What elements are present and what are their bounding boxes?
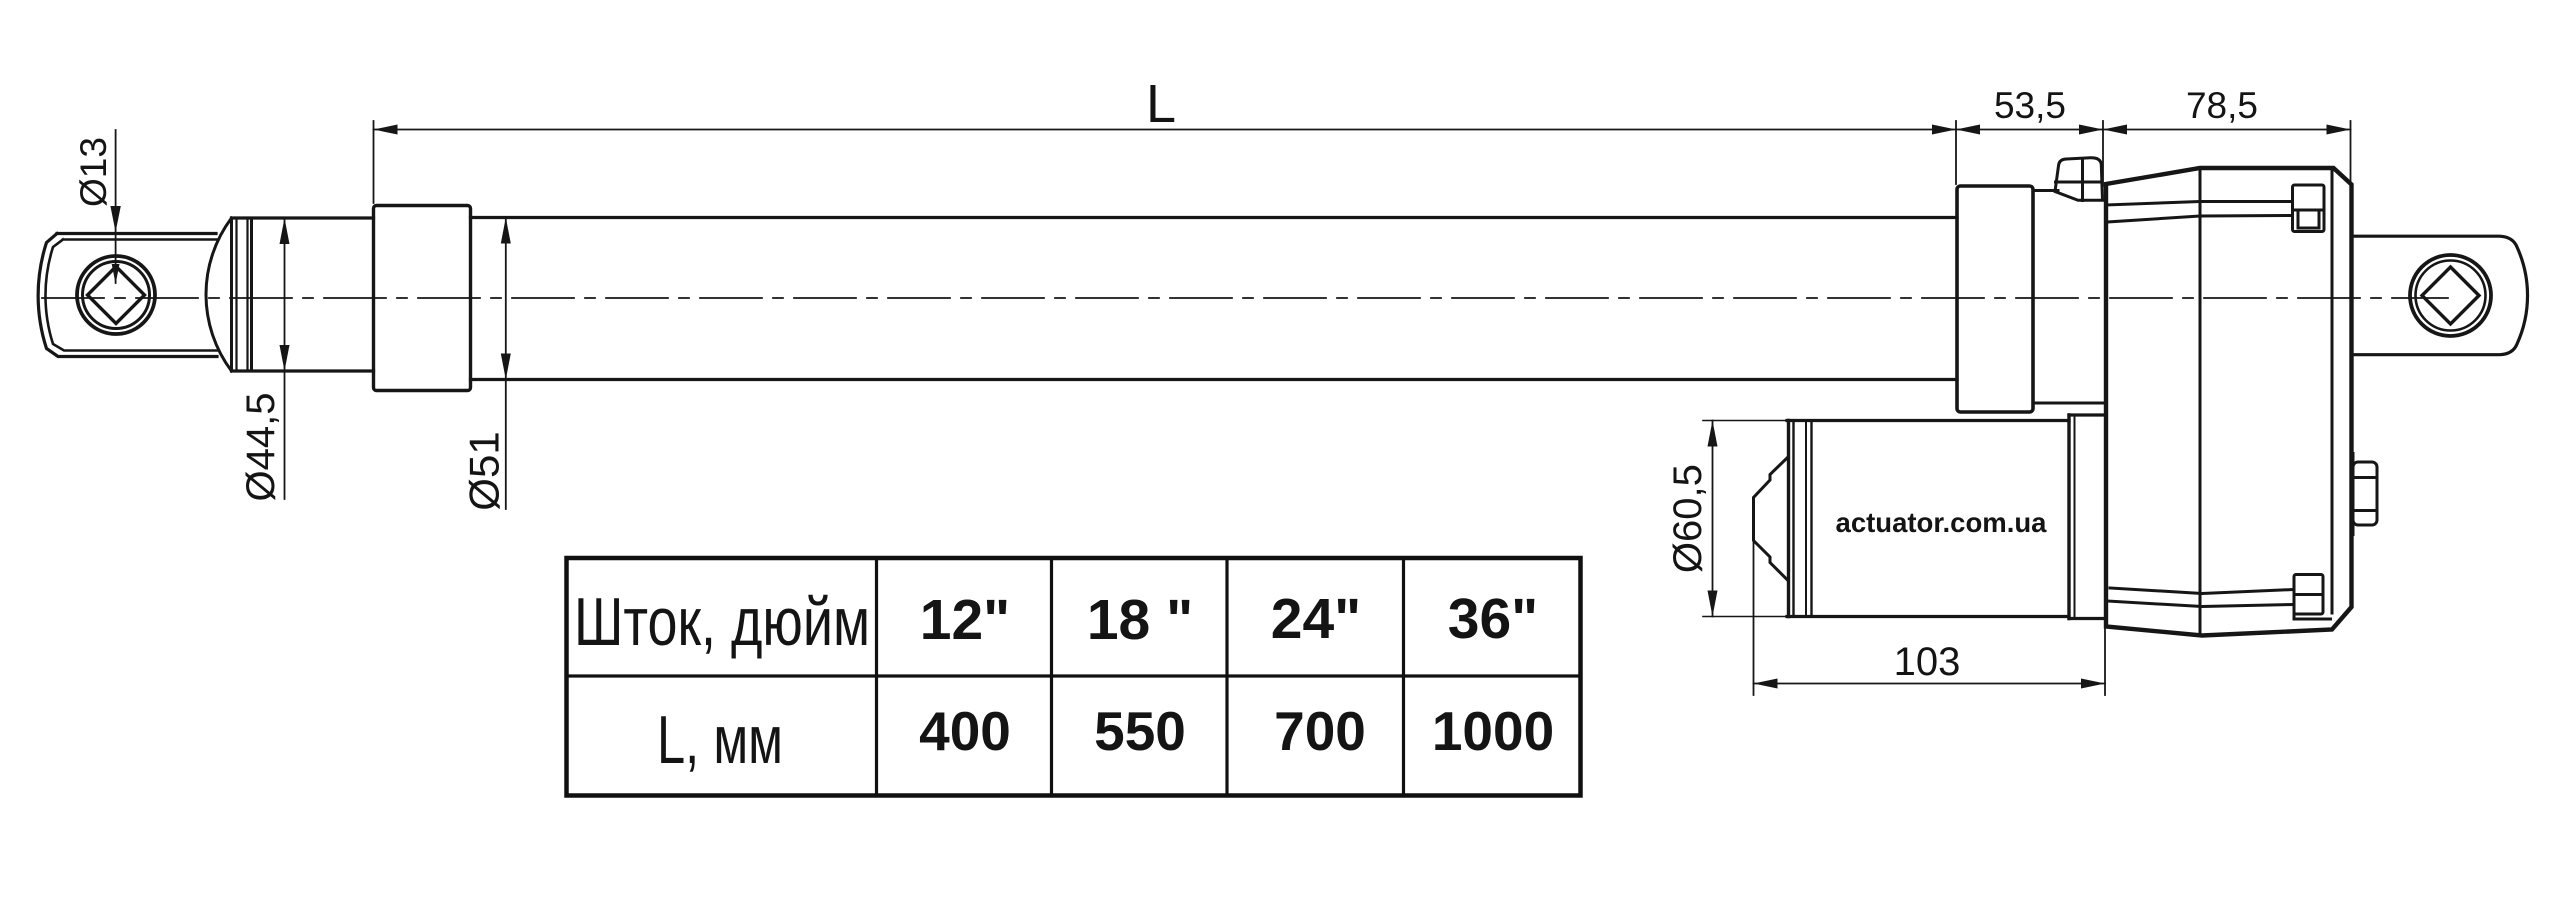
svg-text:L, мм: L, мм	[657, 702, 783, 778]
svg-text:400: 400	[919, 700, 1011, 762]
svg-text:Ø51: Ø51	[461, 431, 508, 510]
svg-text:Ø44,5: Ø44,5	[239, 393, 283, 502]
svg-text:53,5: 53,5	[1994, 85, 2066, 126]
svg-text:12": 12"	[920, 588, 1010, 652]
svg-text:Ø60,5: Ø60,5	[1666, 464, 1710, 573]
svg-text:18 ": 18 "	[1087, 588, 1193, 652]
svg-text:550: 550	[1094, 700, 1186, 762]
svg-text:L: L	[1146, 74, 1176, 134]
svg-text:103: 103	[1894, 640, 1961, 684]
svg-text:actuator.com.ua: actuator.com.ua	[1836, 507, 2048, 538]
svg-text:Шток, дюйм: Шток, дюйм	[574, 584, 870, 660]
svg-text:700: 700	[1274, 700, 1366, 762]
svg-text:78,5: 78,5	[2186, 85, 2258, 126]
svg-text:Ø13: Ø13	[73, 137, 114, 207]
svg-text:36": 36"	[1448, 587, 1538, 651]
svg-text:1000: 1000	[1432, 700, 1554, 762]
svg-text:24": 24"	[1271, 587, 1361, 651]
